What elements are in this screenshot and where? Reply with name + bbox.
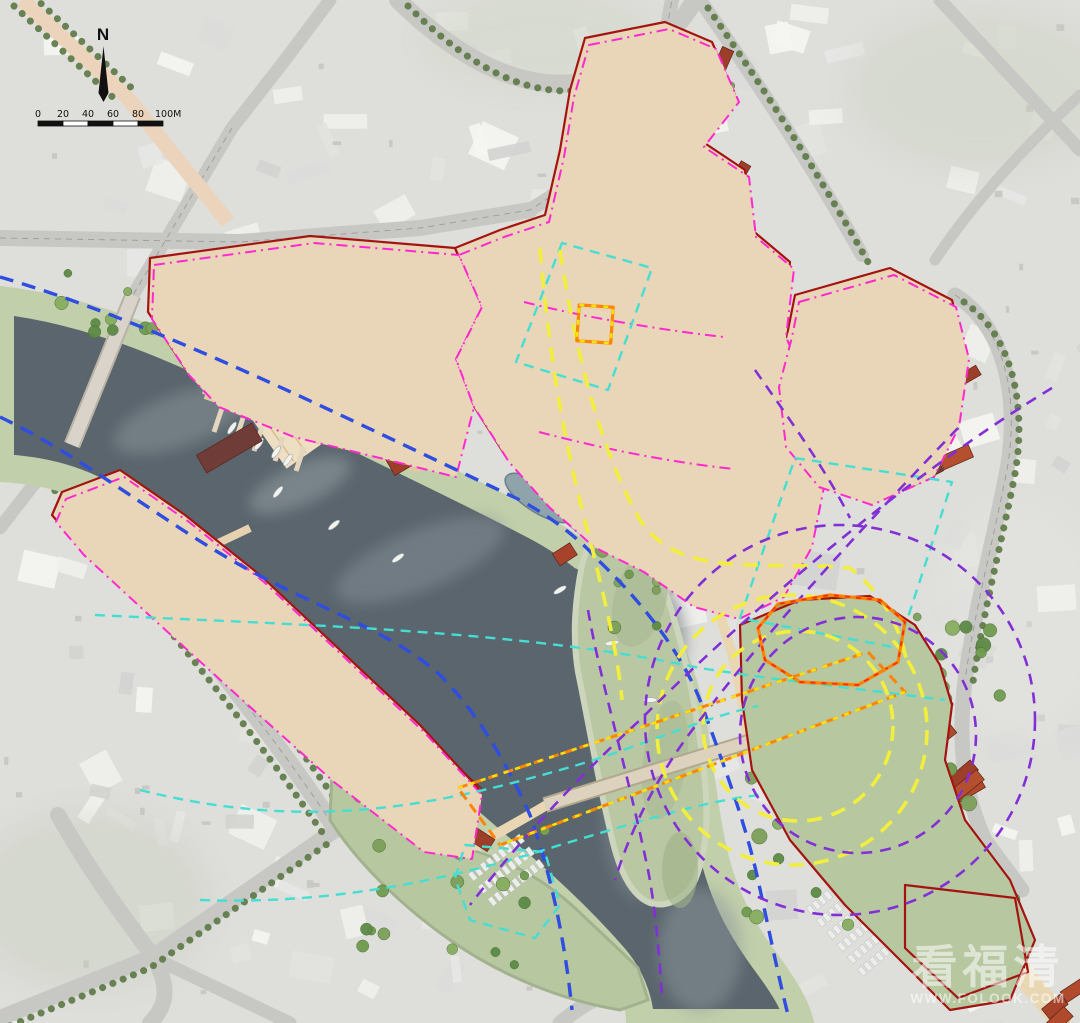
city-speck (1006, 306, 1009, 313)
tree (811, 887, 821, 897)
tree (752, 829, 768, 845)
tree (945, 621, 960, 636)
city-block (226, 814, 254, 828)
tree (961, 795, 977, 811)
city-speck (857, 568, 865, 574)
city-speck (135, 788, 140, 794)
city-speck (1031, 351, 1038, 355)
scale-tick-5: 100M (155, 109, 181, 120)
city-speck (263, 802, 270, 808)
city-speck (201, 990, 207, 994)
city-speck (389, 140, 393, 147)
city-speck (1071, 198, 1079, 204)
scale-bar: 0 20 40 60 80 100M (35, 109, 181, 126)
city-speck (333, 141, 341, 145)
city-speck (319, 64, 324, 69)
city-speck (538, 174, 546, 177)
city-block (1019, 840, 1034, 872)
tree (357, 940, 369, 952)
city-speck (995, 191, 1003, 197)
city-speck (52, 153, 57, 159)
city-block (808, 108, 842, 125)
city-speck (16, 792, 22, 797)
city-block (69, 646, 84, 660)
city-speck (313, 883, 319, 887)
tree (360, 923, 372, 935)
watermark-url: WWW.FOLOOK.COM (910, 991, 1065, 1006)
city-speck (477, 431, 482, 434)
tree (652, 586, 660, 594)
city-block (135, 687, 152, 713)
scale-tick-4: 80 (132, 109, 144, 120)
map-canvas: N 0 20 40 60 80 100M 看福清 WWW.FOLOOK.COM (0, 0, 1080, 1023)
city-speck (142, 786, 150, 790)
scale-tick-0: 0 (35, 109, 41, 120)
tree (447, 944, 458, 955)
tree (983, 624, 996, 637)
tree (625, 570, 634, 579)
tree (107, 325, 118, 336)
city-speck (75, 616, 81, 622)
city-speck (140, 808, 144, 815)
tree (994, 690, 1006, 702)
city-speck (307, 880, 313, 888)
scale-tick-1: 20 (57, 109, 69, 120)
tree (378, 928, 390, 940)
tree (496, 877, 510, 891)
watermark: 看福清 WWW.FOLOOK.COM (910, 941, 1065, 1006)
watermark-brand: 看福清 (912, 941, 1065, 993)
city-speck (202, 821, 211, 824)
scale-tick-3: 60 (107, 109, 119, 120)
tree (842, 919, 854, 931)
tree (520, 871, 529, 880)
tree (519, 897, 531, 909)
city-speck (4, 757, 8, 765)
tree (960, 621, 973, 634)
city-speck (974, 382, 978, 390)
scale-tick-2: 40 (82, 109, 94, 120)
tree (510, 960, 519, 969)
tree (124, 287, 132, 295)
tree (373, 839, 386, 852)
masterplan-map: N 0 20 40 60 80 100M 看福清 WWW.FOLOOK.COM (0, 0, 1080, 1023)
tree (64, 269, 72, 277)
tree (913, 613, 921, 621)
north-label: N (97, 25, 109, 44)
tree (749, 910, 763, 924)
city-block (324, 114, 367, 129)
city-block (119, 672, 135, 695)
city-speck (1019, 264, 1023, 271)
city-speck (526, 986, 532, 990)
tree (976, 647, 987, 658)
tree (491, 947, 500, 956)
scale-segments (38, 121, 163, 126)
tree (88, 326, 100, 338)
